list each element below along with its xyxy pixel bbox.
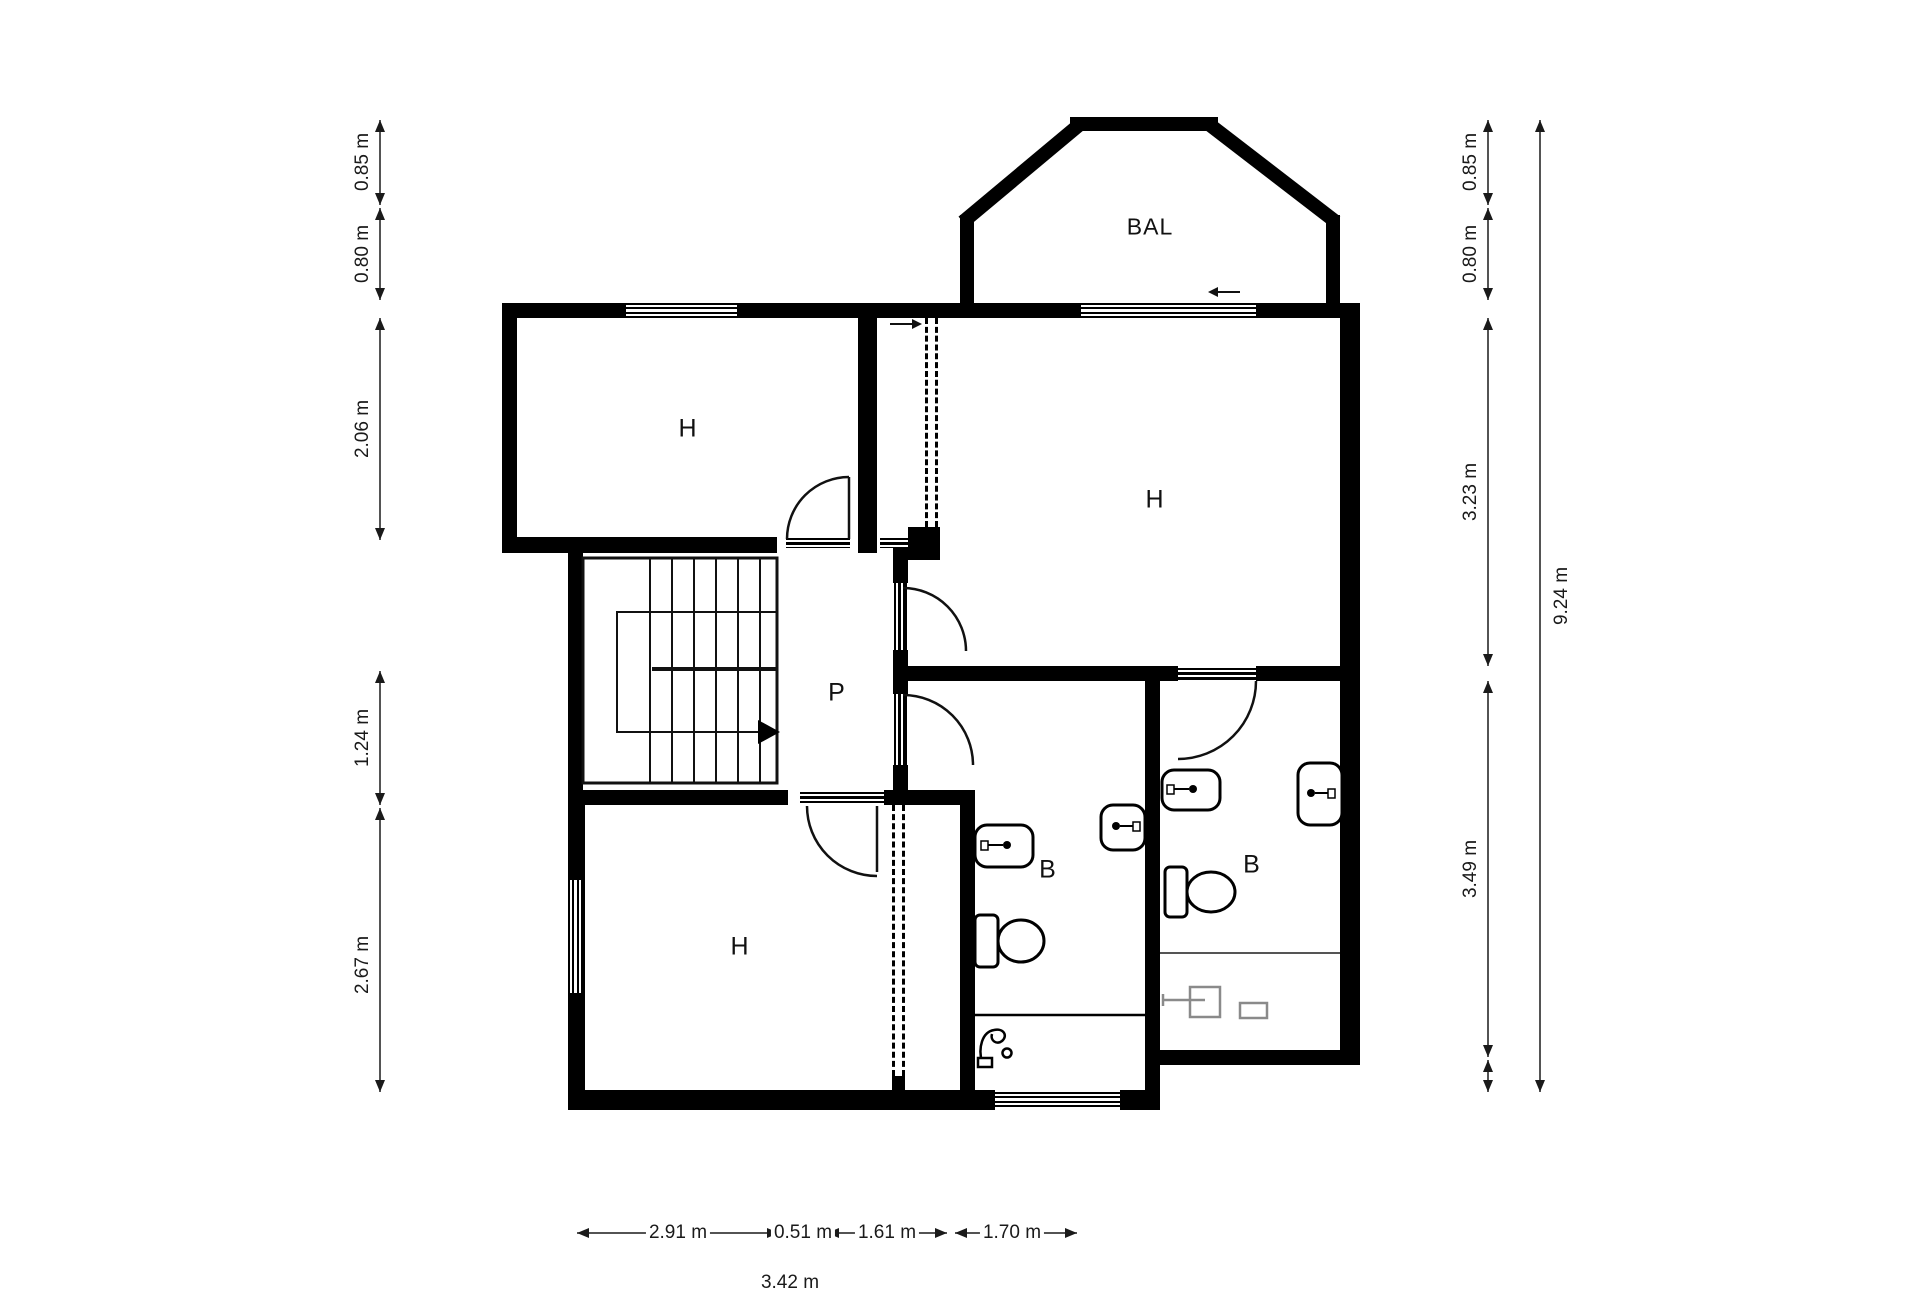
dim-left-0: 0.85 m <box>352 130 374 194</box>
room-label-bathroom-right: B <box>1243 851 1261 880</box>
toilet-tank <box>975 915 998 967</box>
left-arrow-head-icon <box>1208 287 1218 297</box>
dim-left-4: 2.67 m <box>352 933 374 997</box>
balcony-diagonal-left <box>963 125 1079 222</box>
dim-top-truncated-0: 3.43 m <box>558 0 622 6</box>
door-arc-bedroom-right-to-bath <box>1178 681 1256 759</box>
bathroom-fixtures <box>975 763 1342 1067</box>
toilet-tank <box>1165 867 1187 917</box>
room-label-hallway: P <box>828 679 846 708</box>
dim-top-truncated-3: 1.61 m <box>866 0 930 6</box>
room-label-bathroom-left: B <box>1039 856 1057 885</box>
toilet-left-bath <box>975 915 1044 967</box>
dim-left-3: 1.24 m <box>352 706 374 770</box>
dim-bottom-3: 1.70 m <box>980 1222 1044 1244</box>
dimension-lines <box>375 120 1545 1238</box>
toilet-right-bath <box>1165 867 1235 917</box>
dim-right-overall: 9.24 m <box>1551 564 1573 628</box>
plan-linework <box>0 0 1920 1280</box>
dim-left-1: 0.80 m <box>352 222 374 286</box>
dim-left-2: 2.06 m <box>352 397 374 461</box>
door-arc-hall-to-bedroom-right <box>903 588 966 651</box>
washbasin-square <box>1190 987 1220 1017</box>
dim-left-chain <box>375 120 385 1092</box>
door-arc-bedroom-bottom <box>807 806 877 876</box>
dim-right-3: 3.49 m <box>1460 837 1482 901</box>
stair-landing-outline <box>617 612 777 732</box>
toilet-bowl <box>998 920 1044 962</box>
dim-top-truncated-2: 0.94 m <box>763 0 827 6</box>
dim-right-inner-chain <box>1483 120 1493 1092</box>
staircase <box>583 558 780 783</box>
dim-right-0: 0.85 m <box>1460 130 1482 194</box>
dim-bottom-0: 2.91 m <box>646 1222 710 1244</box>
balcony-diagonal-right <box>1210 125 1336 222</box>
toilet-bowl <box>1187 872 1235 912</box>
doors <box>787 477 1256 876</box>
dim-bottom-2: 1.61 m <box>855 1222 919 1244</box>
room-label-balcony: BAL <box>1127 214 1173 241</box>
floorplan-page: { "plan": { "rooms": [ {"id": "bedroom-t… <box>0 0 1920 1280</box>
room-label-bedroom-top-left: H <box>678 415 697 444</box>
shower-head-icon <box>978 1030 1012 1067</box>
right-arrow-head-icon <box>912 319 922 329</box>
direction-arrows <box>890 287 1240 329</box>
dim-right-1: 0.80 m <box>1460 222 1482 286</box>
door-arc-hall-to-bath <box>903 695 973 765</box>
dim-right-overall <box>1535 120 1545 1092</box>
room-label-bedroom-bottom: H <box>730 933 749 962</box>
dim-right-2: 3.23 m <box>1460 460 1482 524</box>
dim-bottom-truncated: 3.42 m <box>758 1272 822 1294</box>
door-arc-top-left-room <box>787 477 849 539</box>
room-label-bedroom-right: H <box>1145 486 1164 515</box>
accessory-rect <box>1240 1003 1267 1018</box>
dim-bottom-1: 0.51 m <box>771 1222 835 1244</box>
